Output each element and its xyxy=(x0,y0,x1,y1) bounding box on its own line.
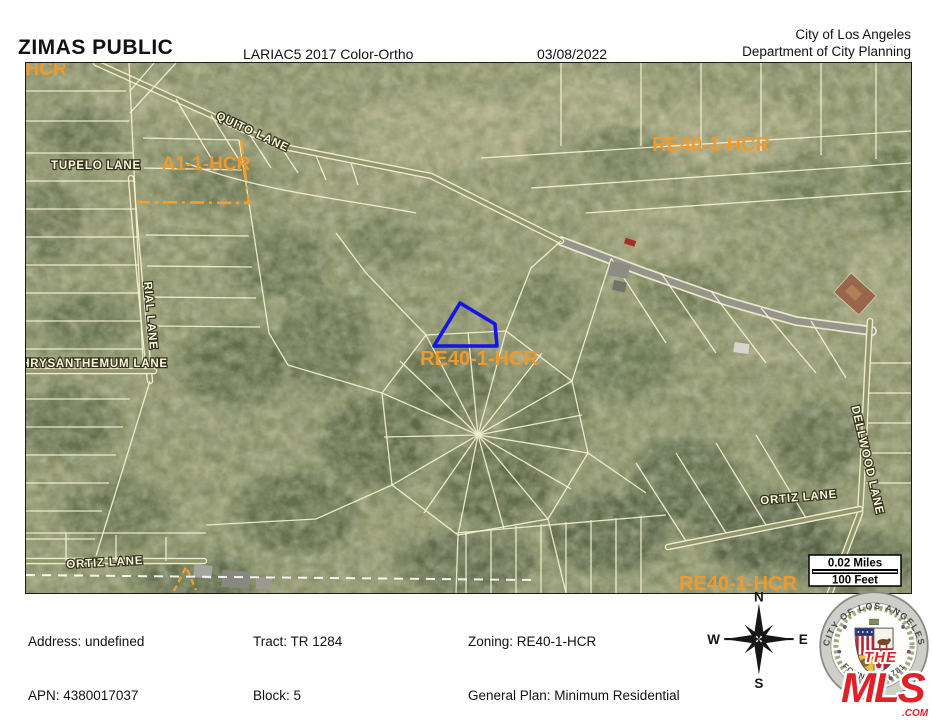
compass-north-label: N xyxy=(754,592,764,604)
app-title: ZIMAS PUBLIC xyxy=(18,36,173,60)
mls-com-text: .COM xyxy=(902,708,929,719)
agency-line2: Department of City Planning xyxy=(742,43,911,60)
compass-west-label: W xyxy=(707,632,720,647)
address-value: Address: undefined xyxy=(28,633,157,651)
street-label-chrysanthemum: CHRYSANTHEMUM LANE xyxy=(26,358,168,370)
map-layer-name: LARIAC5 2017 Color-Ortho xyxy=(243,46,413,62)
zimas-report-page: ZIMAS PUBLIC LARIAC5 2017 Color-Ortho 03… xyxy=(0,0,932,720)
compass-rose-icon: N S W E xyxy=(704,592,810,690)
themls-logo: THE MLS .COM xyxy=(840,644,932,720)
zone-label-re40-center: RE40-1-HCR xyxy=(420,348,538,370)
compass-south-label: S xyxy=(754,676,763,690)
zone-label-re40-bottom: RE40-1-HCR xyxy=(679,573,797,593)
map-date: 03/08/2022 xyxy=(537,46,607,62)
mls-main-text: MLS xyxy=(841,664,926,711)
general-plan-value: General Plan: Minimum Residential xyxy=(468,687,680,705)
scale-miles: 0.02 Miles xyxy=(828,558,882,570)
zone-label-re40-topright: RE40-1-HCR xyxy=(652,134,770,156)
zoning-block: Zoning: RE40-1-HCR General Plan: Minimum… xyxy=(468,597,680,720)
agency-name: City of Los Angeles Department of City P… xyxy=(742,26,911,60)
zone-label-partial: HCR xyxy=(26,63,67,80)
street-label-tupelo: TUPELO LANE xyxy=(51,160,141,172)
compass-east-label: E xyxy=(799,632,808,647)
zoning-value: Zoning: RE40-1-HCR xyxy=(468,633,680,651)
zone-label-a1: A1-1-HCR xyxy=(162,154,251,175)
block-value: Block: 5 xyxy=(253,687,342,705)
agency-line1: City of Los Angeles xyxy=(742,26,911,43)
tract-block: Tract: TR 1284 Block: 5 Lot: 15 Arb: Non… xyxy=(253,597,342,720)
ortho-map: QUITO LANE TUPELO LANE RIAL LANE CHRYSAN… xyxy=(26,63,911,593)
parcel-identity-block: Address: undefined APN: 4380017037 PIN #… xyxy=(28,597,157,720)
tract-value: Tract: TR 1284 xyxy=(253,633,342,651)
scale-feet: 100 Feet xyxy=(832,575,878,587)
apn-value: APN: 4380017037 xyxy=(28,687,157,705)
aerial-map-viewport[interactable]: QUITO LANE TUPELO LANE RIAL LANE CHRYSAN… xyxy=(25,62,912,594)
scale-bar: 0.02 Miles 100 Feet xyxy=(809,555,901,587)
